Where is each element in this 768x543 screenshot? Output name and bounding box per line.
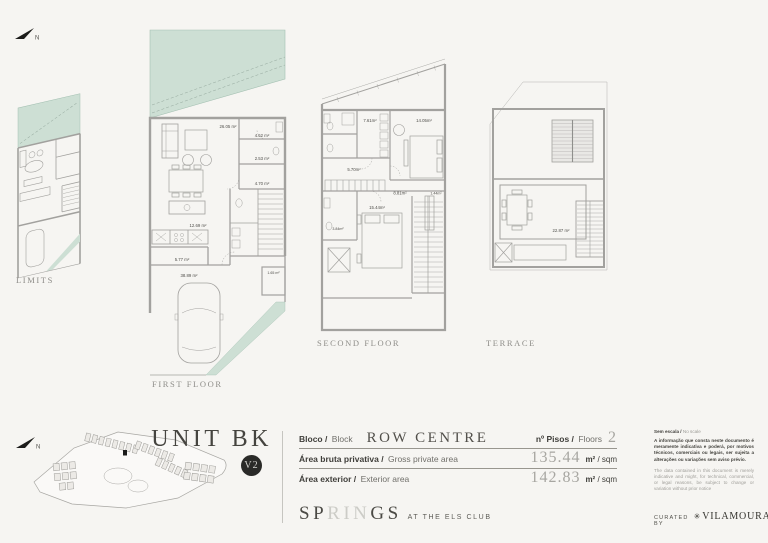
limits-garden — [18, 94, 80, 148]
exterior-area-unit: m² / sqm — [585, 469, 617, 487]
area-label: 5.77 m² — [175, 257, 190, 262]
toilet — [236, 199, 242, 207]
springs-logo: SPRINGS AT THE ELS CLUB — [299, 503, 492, 525]
second-floor-label: SECOND FLOOR — [317, 338, 400, 348]
planter — [514, 245, 566, 260]
limits-label: LIMITS — [16, 275, 54, 285]
skylight — [328, 248, 350, 272]
area-label: 7.61m² — [363, 118, 377, 123]
brand-part: SP — [299, 503, 327, 525]
exterior-walls — [322, 64, 445, 330]
kitchen-counter — [152, 230, 208, 244]
gross-area-unit: m² / sqm — [585, 449, 617, 467]
dining-table — [25, 159, 43, 174]
area-label: 14.05m² — [416, 118, 432, 123]
area-label: 22.87 m² — [553, 228, 571, 233]
brand-tagline: AT THE ELS CLUB — [408, 514, 492, 521]
exterior-walls — [150, 118, 285, 313]
bed — [357, 213, 402, 268]
vilamoura-wordmark: VILAMOURA — [702, 511, 768, 522]
armchair — [201, 155, 212, 166]
area-label: 3.84m² — [332, 227, 344, 231]
north-label: N — [35, 36, 39, 42]
brand-part: GS — [370, 503, 401, 525]
stairs — [576, 201, 604, 257]
outdoor-table — [502, 190, 532, 230]
green-strip — [206, 302, 285, 375]
limits-plan — [8, 88, 108, 283]
curated-by: CURATED BY ✳ VILAMOURA — [654, 511, 768, 527]
sink — [276, 122, 283, 132]
vertical-divider — [282, 431, 283, 523]
floors-label: nº Pisos / Floors — [536, 429, 602, 447]
pergola — [552, 120, 593, 162]
toilet — [327, 144, 333, 152]
area-label: 4.70 m² — [255, 181, 270, 186]
area-label: 15.44m² — [369, 205, 385, 210]
armchair — [394, 125, 405, 136]
no-scale-note: Sem escala / No scale — [654, 429, 754, 434]
area-label: 4.62 m² — [255, 133, 270, 138]
exterior-area-value: 142.83 — [530, 469, 580, 487]
toilet — [273, 147, 279, 155]
area-label: 12.69 m² — [190, 223, 208, 228]
terrace-label: TERRACE — [486, 338, 536, 348]
table-row-exterior-area: Área exterior / Exterior area 142.83 m² … — [299, 469, 617, 488]
area-label: 1.44m² — [430, 192, 442, 196]
area-label: 38.89 m² — [181, 273, 199, 278]
wardrobe — [325, 180, 385, 191]
dining-table — [169, 165, 203, 197]
terrace-parapet — [500, 185, 586, 239]
first-floor-label: FIRST FLOOR — [152, 379, 223, 389]
toilet — [326, 222, 332, 230]
gross-area-label: Área bruta privativa / Gross private are… — [299, 449, 458, 467]
sink — [324, 114, 330, 123]
version-badge: V2 — [241, 455, 262, 476]
exterior-area-label: Área exterior / Exterior area — [299, 469, 409, 487]
north-arrow-icon: N — [13, 26, 43, 42]
interior-walls — [322, 110, 445, 298]
tv-unit — [185, 130, 207, 150]
limits-green-strip — [46, 234, 80, 272]
stairs — [63, 186, 79, 206]
curated-by-label: CURATED BY — [654, 515, 689, 527]
garden-area — [150, 30, 285, 118]
area-label: 8.81m² — [393, 191, 407, 196]
sink — [324, 198, 330, 208]
stairs — [258, 189, 283, 256]
disclaimer: Sem escala / No scale A informação que c… — [654, 429, 754, 498]
disclaimer-pt: A informação que consta neste documento … — [654, 438, 754, 463]
floors-value: 2 — [608, 429, 617, 447]
first-floor-plan: 26.05 m² 4.62 m² 2.53 m² 4.70 m² 12.69 m… — [142, 27, 287, 377]
area-label: 2.53 m² — [255, 156, 270, 161]
kitchen-counter — [20, 187, 50, 202]
table-row-gross-area: Área bruta privativa / Gross private are… — [299, 449, 617, 469]
block-value: ROW CENTRE — [367, 430, 489, 447]
shelves — [380, 114, 388, 157]
car — [175, 283, 223, 363]
kitchen-island — [169, 201, 205, 214]
gross-area-value: 135.44 — [530, 449, 580, 467]
info-table: Bloco / Block ROW CENTRE nº Pisos / Floo… — [299, 429, 617, 488]
interior-walls — [150, 118, 285, 302]
sofa — [162, 124, 178, 158]
area-label: 26.05 m² — [220, 124, 238, 129]
table-row-block: Bloco / Block ROW CENTRE nº Pisos / Floo… — [299, 429, 617, 449]
second-floor-plan: 7.61m² 14.05m² 5.70m² 8.81m² 1.44m² 15.4… — [312, 58, 452, 343]
sofa — [20, 150, 26, 167]
armchair — [183, 155, 194, 166]
unit-title: UNIT BK — [108, 426, 272, 453]
block-label: Bloco / Block — [299, 429, 353, 447]
skylight — [495, 243, 512, 262]
area-label: 5.70m² — [347, 167, 361, 172]
disclaimer-en: The data contained in this document is m… — [654, 468, 754, 493]
area-label: 1.65 m² — [267, 271, 280, 275]
bed — [404, 136, 443, 178]
car — [26, 228, 44, 268]
terrace-plan: 22.87 m² — [481, 61, 613, 286]
vilamoura-flower-icon: ✳ — [694, 512, 701, 521]
stairs — [414, 196, 443, 293]
brand-part: RIN — [327, 503, 370, 525]
